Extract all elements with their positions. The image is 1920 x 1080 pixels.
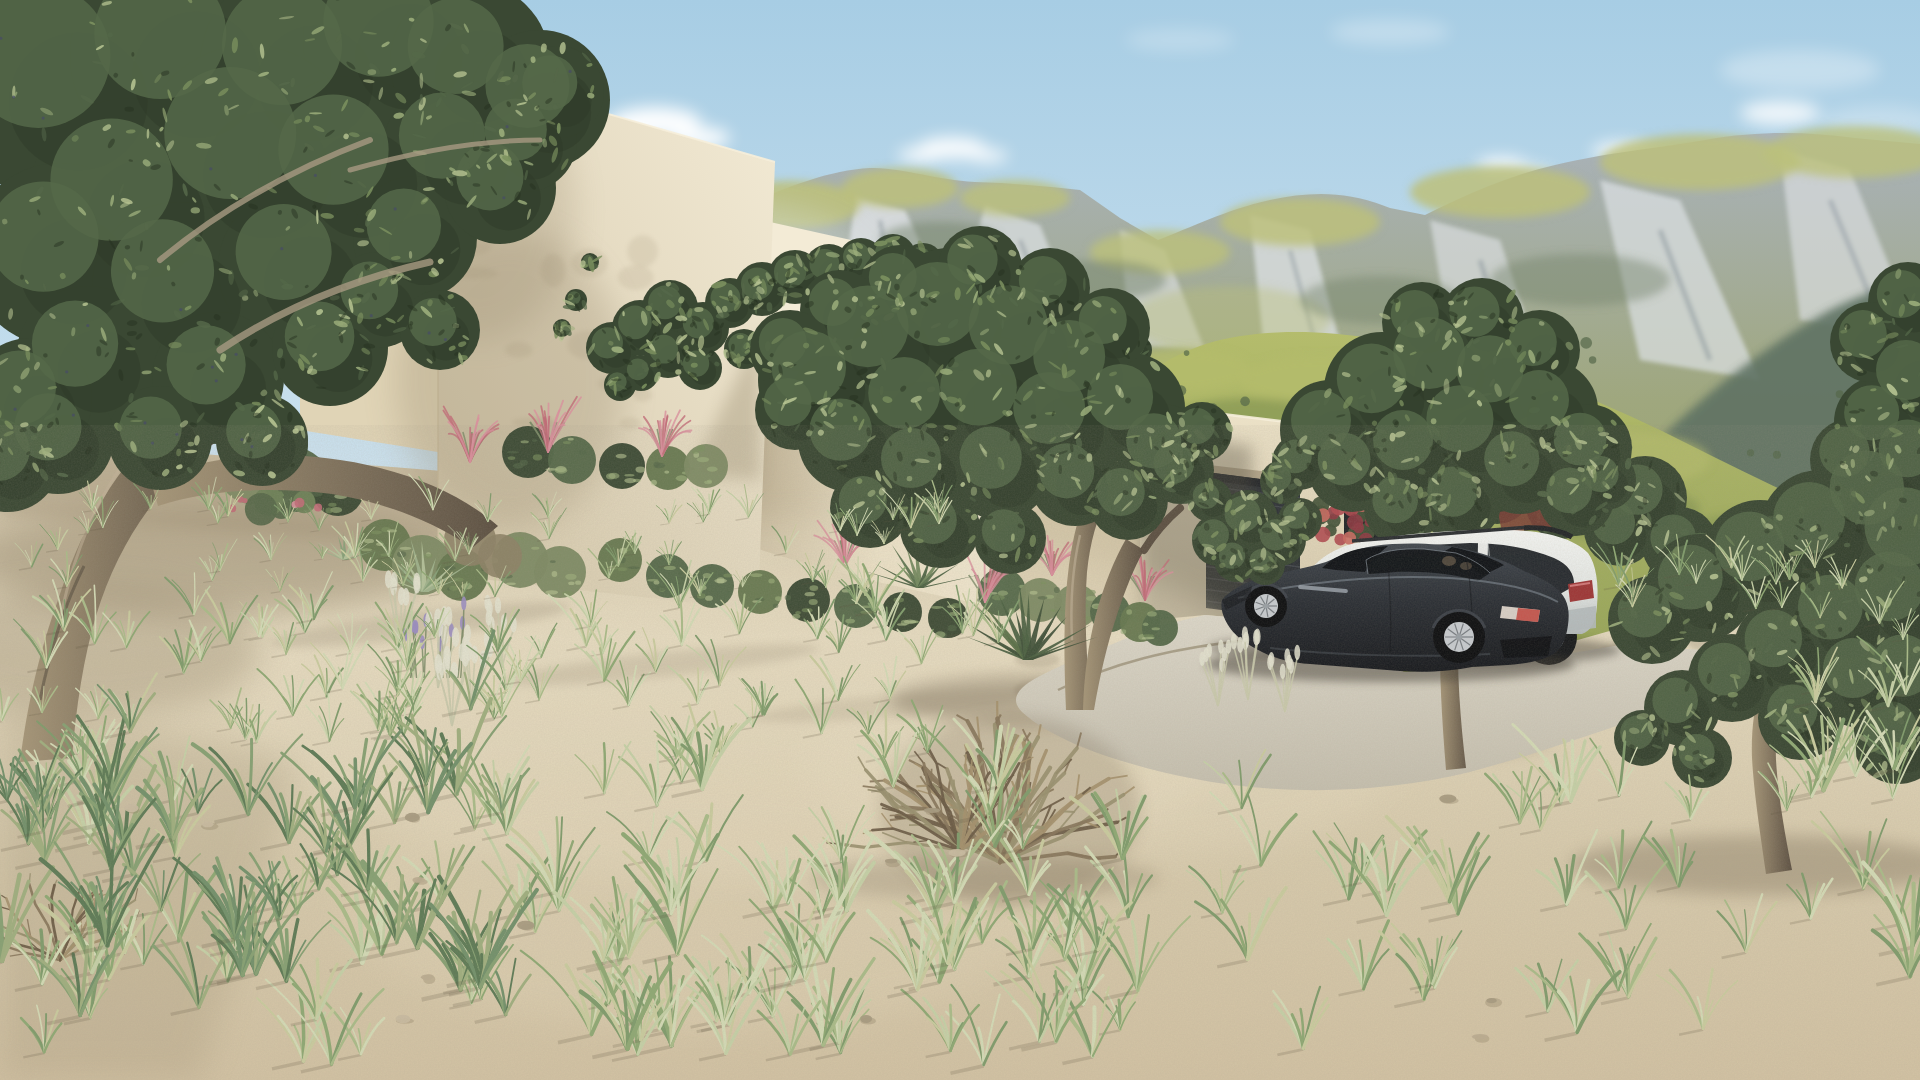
render-image <box>0 0 1920 1080</box>
render-viewport <box>0 0 1920 1080</box>
grain-overlay <box>0 425 1920 1080</box>
